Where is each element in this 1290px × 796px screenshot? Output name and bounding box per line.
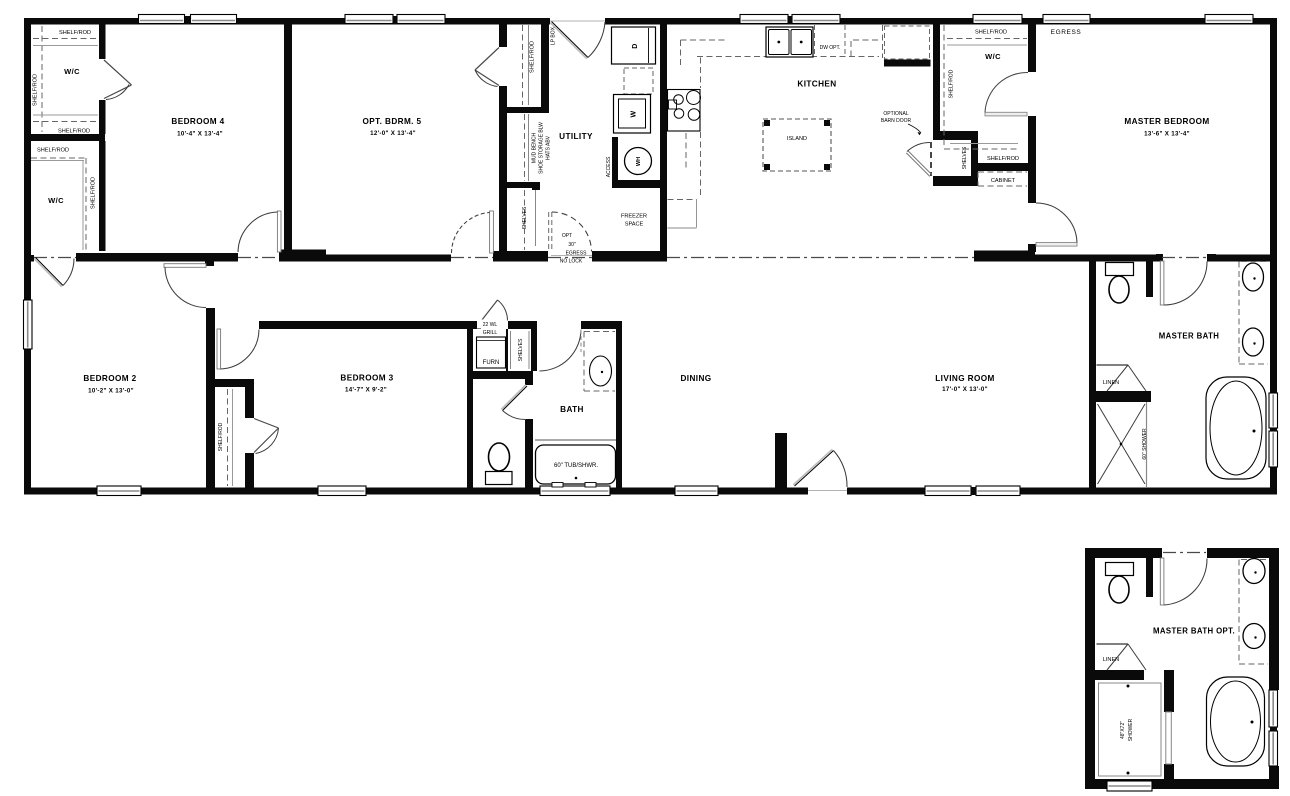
svg-text:30": 30"	[568, 242, 576, 248]
svg-text:SHELF/ROD: SHELF/ROD	[33, 74, 39, 106]
svg-text:SHELVES: SHELVES	[522, 206, 528, 229]
svg-text:LP BOX: LP BOX	[551, 26, 557, 45]
svg-text:BEDROOM 4: BEDROOM 4	[171, 117, 224, 126]
svg-text:W/C: W/C	[48, 196, 64, 205]
svg-text:ACCESS: ACCESS	[606, 156, 612, 177]
svg-text:KITCHEN: KITCHEN	[797, 80, 836, 89]
svg-text:22 WL: 22 WL	[483, 322, 498, 328]
svg-text:W/C: W/C	[985, 52, 1001, 61]
svg-text:FURN: FURN	[483, 360, 500, 366]
svg-text:SHELF/ROD: SHELF/ROD	[218, 422, 224, 451]
svg-text:MASTER BEDROOM: MASTER BEDROOM	[1124, 117, 1209, 126]
svg-text:ISLAND: ISLAND	[787, 136, 807, 142]
svg-text:OPT. BDRM. 5: OPT. BDRM. 5	[363, 117, 422, 126]
svg-text:W: W	[631, 110, 638, 117]
svg-text:MUD BENCH: MUD BENCH	[532, 132, 538, 163]
svg-text:12'-0" X 13'-4": 12'-0" X 13'-4"	[370, 130, 416, 137]
svg-text:BARN DOOR: BARN DOOR	[881, 118, 912, 124]
svg-text:SHELF/ROD: SHELF/ROD	[58, 129, 90, 135]
svg-text:14'-7" X 9'-2": 14'-7" X 9'-2"	[345, 387, 387, 394]
svg-text:SHELF/ROD: SHELF/ROD	[37, 148, 69, 154]
svg-text:MASTER BATH: MASTER BATH	[1159, 332, 1220, 341]
svg-text:WH: WH	[636, 157, 642, 166]
svg-text:DW OPT.: DW OPT.	[820, 45, 841, 51]
svg-text:D: D	[632, 43, 639, 48]
svg-text:UTILITY: UTILITY	[559, 132, 593, 141]
svg-text:NO LOCK: NO LOCK	[560, 259, 583, 265]
svg-text:SHELF/ROD: SHELF/ROD	[975, 30, 1007, 36]
svg-text:OPTIONAL: OPTIONAL	[883, 111, 909, 117]
svg-text:17'-0" X 13'-0": 17'-0" X 13'-0"	[942, 386, 988, 393]
svg-text:SHELF/ROD: SHELF/ROD	[987, 156, 1019, 162]
svg-text:LINEN: LINEN	[1103, 657, 1119, 663]
svg-text:SHOE STORAGE BLW: SHOE STORAGE BLW	[539, 122, 545, 174]
svg-text:GRILL: GRILL	[483, 330, 498, 336]
svg-text:BATH: BATH	[560, 405, 584, 414]
svg-text:10'-4" X 13'-4": 10'-4" X 13'-4"	[177, 131, 223, 138]
svg-text:SHELF/ROD: SHELF/ROD	[530, 41, 536, 73]
svg-text:HATS ABV: HATS ABV	[546, 135, 552, 160]
svg-text:MASTER BATH OPT.: MASTER BATH OPT.	[1153, 627, 1235, 636]
svg-text:LINEN: LINEN	[1103, 380, 1119, 386]
svg-text:FREEZER: FREEZER	[621, 214, 647, 220]
svg-text:BEDROOM 2: BEDROOM 2	[83, 374, 136, 383]
svg-text:60" TUB/SHWR.: 60" TUB/SHWR.	[554, 463, 598, 469]
svg-text:SHOWER: SHOWER	[1128, 718, 1134, 741]
svg-text:13'-6" X 13'-4": 13'-6" X 13'-4"	[1144, 131, 1190, 138]
svg-text:SHELF/ROD: SHELF/ROD	[59, 30, 91, 36]
svg-text:SHELF/ROD: SHELF/ROD	[91, 177, 97, 209]
svg-text:10'-2" X 13'-0": 10'-2" X 13'-0"	[88, 388, 134, 395]
svg-text:CABINET: CABINET	[991, 178, 1016, 184]
svg-text:SPACE: SPACE	[625, 222, 644, 228]
svg-text:BEDROOM 3: BEDROOM 3	[340, 374, 393, 383]
svg-text:48"X72": 48"X72"	[1120, 721, 1126, 739]
svg-text:SHELVES: SHELVES	[962, 146, 968, 169]
svg-text:OPT: OPT	[562, 233, 572, 239]
svg-text:DINING: DINING	[680, 374, 711, 383]
svg-text:60" SHOWER: 60" SHOWER	[1142, 428, 1148, 460]
svg-text:EGRESS: EGRESS	[566, 251, 588, 257]
svg-text:SHELF/ROD: SHELF/ROD	[949, 69, 955, 98]
svg-text:SHELVES: SHELVES	[518, 338, 524, 361]
svg-text:EGRESS: EGRESS	[1051, 29, 1082, 36]
svg-text:LIVING ROOM: LIVING ROOM	[935, 374, 994, 383]
svg-text:W/C: W/C	[64, 67, 80, 76]
